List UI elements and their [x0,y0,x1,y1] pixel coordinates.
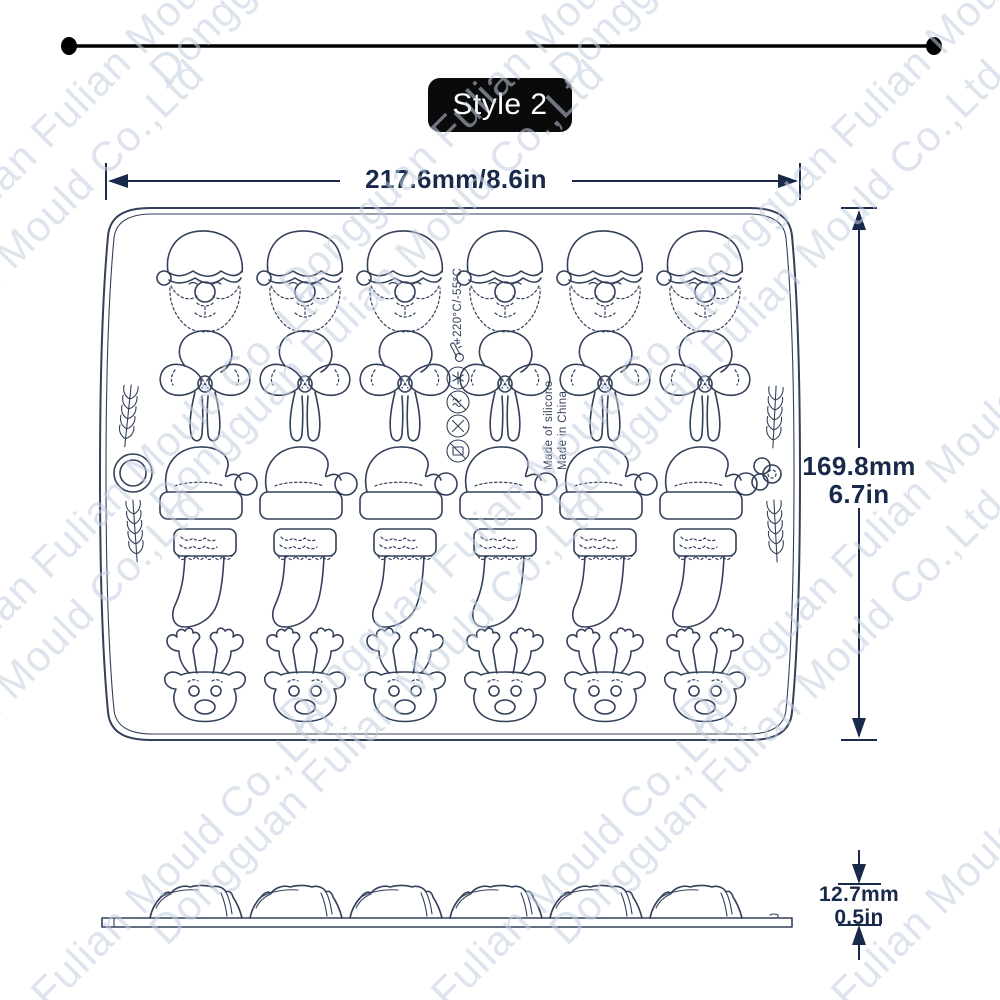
cavity-ribbon-bow [560,331,650,441]
mold-side-view [102,886,792,928]
product-dimension-diagram: +220°C/-55°C [0,0,1000,1000]
cavity-santa-hat [560,447,657,519]
side-view-cavity-bump [250,886,342,919]
style-badge-label: Style 2 [452,88,547,122]
cavity-row-stocking [173,529,736,627]
thermometer-icon [448,340,467,363]
no-utensils-circle-icon [447,415,469,437]
width-dimension-label: 217.6mm/8.6in [336,165,576,193]
cavity-reindeer [165,628,246,721]
cavity-santa-face [157,231,242,332]
no-oven-circle-icon [447,440,469,462]
cavity-stocking [273,529,336,627]
cavity-reindeer [665,628,746,721]
height-dimension-label: 169.8mm 6.7in [791,452,927,508]
side-view-cavity-bump [650,886,742,919]
temperature-range-marking: +220°C/-55°C [452,268,464,344]
style-badge: Style 2 [428,78,572,132]
side-view-cavity-bump [450,886,542,919]
cavity-santa-face [557,231,642,332]
cavity-santa-hat [260,447,357,519]
cavity-row-reindeer [165,628,746,721]
height-inch-value: 6.7in [791,480,927,508]
cavity-row-santa-face [157,231,742,332]
hang-hole [114,454,152,492]
cavity-santa-hat [660,447,757,519]
wheat-decoration-left-top [118,384,139,447]
side-view-cavity-bump [350,886,442,919]
cavity-stocking [573,529,636,627]
no-microwave-circle-icon [447,391,469,413]
thickness-dimension-label: 12.7mm 0.5in [799,884,919,929]
cavity-reindeer [465,628,546,721]
cavity-stocking [373,529,436,627]
cavity-santa-face [457,231,542,332]
cavity-reindeer [565,628,646,721]
mold-top-view: +220°C/-55°C [100,208,800,740]
cavity-santa-face [257,231,342,332]
cavity-santa-face [657,231,742,332]
cavity-ribbon-bow [360,331,450,441]
cavity-reindeer [265,628,346,721]
cavity-row-ribbon-bow [160,331,750,441]
cavity-stocking [673,529,736,627]
cavity-ribbon-bow [160,331,250,441]
cavity-ribbon-bow [260,331,350,441]
height-mm-value: 169.8mm [791,452,927,480]
cavity-ribbon-bow [460,331,550,441]
cavity-reindeer [365,628,446,721]
thickness-mm-value: 12.7mm [799,884,919,907]
cavity-santa-face [357,231,442,332]
origin-marking: Made in China [557,390,569,470]
side-view-base-plate [102,918,792,927]
wheat-decoration-right-top [766,386,784,449]
wheat-decoration-right-bottom [767,500,785,563]
cavity-stocking [173,529,236,627]
cavity-stocking [473,529,536,627]
side-view-cavity-bump [150,886,242,919]
side-view-cavity-bump [550,886,642,919]
thickness-inch-value: 0.5in [799,907,919,930]
material-marking: Made of silicone [543,381,555,471]
care-icons-column: +220°C/-55°C [447,268,469,462]
top-divider-rule [61,37,942,55]
cavity-row-santa-hat [160,447,757,519]
cavity-santa-hat [160,447,257,519]
cavity-santa-hat [360,447,457,519]
cavity-ribbon-bow [660,331,750,441]
wheat-decoration-left-bottom [126,500,145,563]
